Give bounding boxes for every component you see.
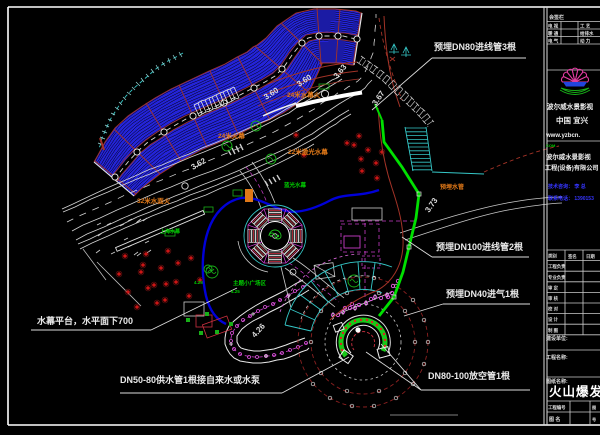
svg-text:www.yzbcn.: www.yzbcn. bbox=[545, 133, 580, 139]
svg-text:上海水幕: 上海水幕 bbox=[160, 228, 181, 235]
svg-text:4.25: 4.25 bbox=[194, 280, 203, 285]
svg-text:动 力: 动 力 bbox=[580, 38, 591, 45]
svg-text:32米水面火: 32米水面火 bbox=[137, 196, 171, 205]
svg-text:预埋水管: 预埋水管 bbox=[440, 183, 464, 191]
svg-text:联系电话： 1390153: 联系电话： 1390153 bbox=[548, 195, 594, 202]
svg-text:预埋DN80进线管3根: 预埋DN80进线管3根 bbox=[434, 41, 517, 52]
svg-text:电 视: 电 视 bbox=[548, 23, 559, 30]
svg-text:水幕平台，水平面下700: 水幕平台，水平面下700 bbox=[37, 315, 133, 326]
svg-text:暖 通: 暖 通 bbox=[548, 30, 559, 37]
svg-text:工 艺: 工 艺 bbox=[580, 23, 591, 30]
svg-text:图: 图 bbox=[592, 404, 596, 411]
svg-text:工程负责: 工程负责 bbox=[548, 263, 566, 270]
svg-text:审 核: 审 核 bbox=[548, 295, 559, 302]
svg-text:审 定: 审 定 bbox=[548, 284, 559, 291]
svg-text:波尔威水景影视: 波尔威水景影视 bbox=[546, 152, 591, 161]
svg-text:工程名称:: 工程名称: bbox=[546, 354, 568, 361]
svg-text:会签栏: 会签栏 bbox=[548, 14, 564, 21]
svg-text:DN80-100放空管1根: DN80-100放空管1根 bbox=[428, 370, 511, 381]
svg-text:给排水: 给排水 bbox=[580, 30, 594, 37]
svg-text:工程编号: 工程编号 bbox=[548, 404, 566, 411]
svg-text:建设单位:: 建设单位: bbox=[545, 335, 568, 342]
svg-text:号: 号 bbox=[592, 416, 596, 423]
svg-text:24米火幕: 24米火幕 bbox=[218, 131, 245, 140]
svg-text:专业负责: 专业负责 bbox=[548, 274, 566, 281]
svg-text:制 图: 制 图 bbox=[548, 327, 559, 334]
svg-text:类别: 类别 bbox=[548, 253, 557, 260]
svg-text:COM: COM bbox=[546, 143, 556, 148]
svg-text:校 对: 校 对 bbox=[548, 306, 559, 313]
svg-text:图 名: 图 名 bbox=[549, 416, 560, 423]
svg-text:工程(设备)有限公司: 工程(设备)有限公司 bbox=[545, 164, 599, 172]
svg-text:设 计: 设 计 bbox=[548, 316, 559, 323]
svg-text:预埋DN100进线管2根: 预埋DN100进线管2根 bbox=[436, 241, 524, 252]
svg-text:波尔威水景影视: 波尔威水景影视 bbox=[547, 102, 594, 111]
svg-text:22米激光水幕: 22米激光水幕 bbox=[288, 147, 328, 156]
svg-text:4.25: 4.25 bbox=[231, 289, 240, 294]
svg-text:日期: 日期 bbox=[586, 253, 595, 260]
svg-text:火山爆发: 火山爆发 bbox=[549, 384, 600, 399]
svg-text:图纸名称:: 图纸名称: bbox=[546, 378, 568, 385]
svg-text:预埋DN40进气1根: 预埋DN40进气1根 bbox=[446, 288, 520, 299]
svg-text:中国 宜兴: 中国 宜兴 bbox=[556, 115, 589, 125]
svg-text:DN50-80供水管1根接自来水或水泵: DN50-80供水管1根接自来水或水泵 bbox=[120, 374, 261, 385]
svg-text:技术咨询： 李 总: 技术咨询： 李 总 bbox=[548, 183, 586, 190]
svg-text:24米水幕火: 24米水幕火 bbox=[287, 90, 321, 99]
svg-text:主题小广场区: 主题小广场区 bbox=[233, 279, 267, 287]
svg-text:蓝光水幕: 蓝光水幕 bbox=[284, 181, 307, 189]
svg-text:电 气: 电 气 bbox=[548, 38, 559, 45]
svg-text:签名: 签名 bbox=[567, 253, 577, 260]
